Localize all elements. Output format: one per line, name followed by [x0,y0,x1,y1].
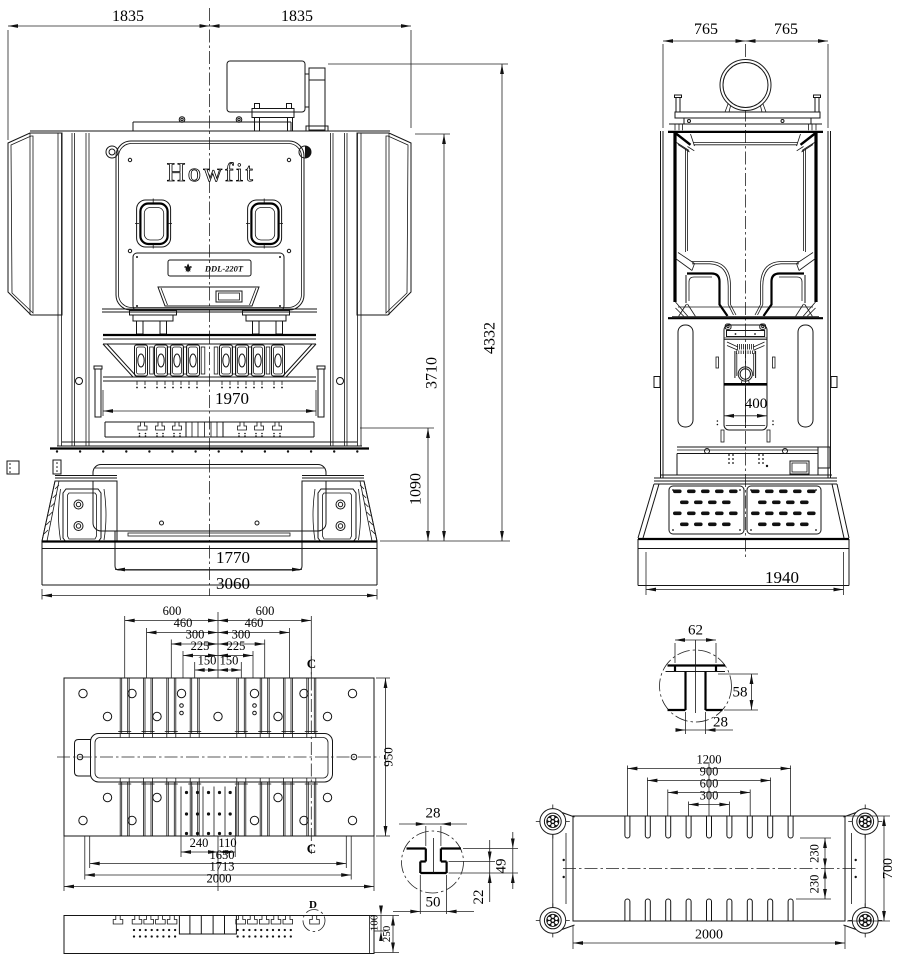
svg-text:230: 230 [808,844,822,863]
svg-text:900: 900 [700,765,719,779]
svg-text:62: 62 [688,623,703,639]
svg-text:2000: 2000 [695,928,723,943]
svg-text:D: D [309,899,317,911]
svg-text:4332: 4332 [482,322,499,354]
svg-text:28: 28 [426,806,441,822]
svg-text:400: 400 [745,396,768,412]
svg-text:765: 765 [694,21,718,38]
svg-text:3710: 3710 [424,357,441,389]
svg-text:230: 230 [808,875,822,894]
svg-text:50: 50 [426,895,441,911]
svg-text:58: 58 [733,685,748,701]
svg-text:DDL-220T: DDL-220T [204,264,244,274]
svg-text:600: 600 [700,777,719,791]
svg-text:49: 49 [494,859,510,874]
svg-text:225: 225 [191,639,210,653]
svg-text:22: 22 [471,890,487,905]
svg-text:1090: 1090 [408,473,425,505]
svg-text:1200: 1200 [697,753,722,767]
svg-text:300: 300 [700,789,719,803]
svg-text:150: 150 [220,654,239,668]
svg-text:1970: 1970 [215,389,249,408]
svg-text:250: 250 [381,925,393,942]
svg-text:1770: 1770 [216,548,250,567]
svg-text:950: 950 [381,747,396,767]
svg-text:3060: 3060 [216,574,250,593]
svg-text:100: 100 [369,914,381,931]
svg-text:765: 765 [774,21,798,38]
svg-text:28: 28 [713,715,728,731]
svg-text:⚜: ⚜ [183,263,193,275]
svg-text:Howfit: Howfit [167,158,256,187]
svg-text:1835: 1835 [112,8,144,25]
svg-text:150: 150 [198,654,217,668]
svg-text:2000: 2000 [207,872,232,886]
svg-text:240: 240 [190,836,209,850]
svg-text:C: C [307,841,316,856]
svg-text:1835: 1835 [281,8,313,25]
svg-text:225: 225 [227,639,246,653]
svg-text:1940: 1940 [765,568,799,587]
svg-text:700: 700 [881,858,896,879]
